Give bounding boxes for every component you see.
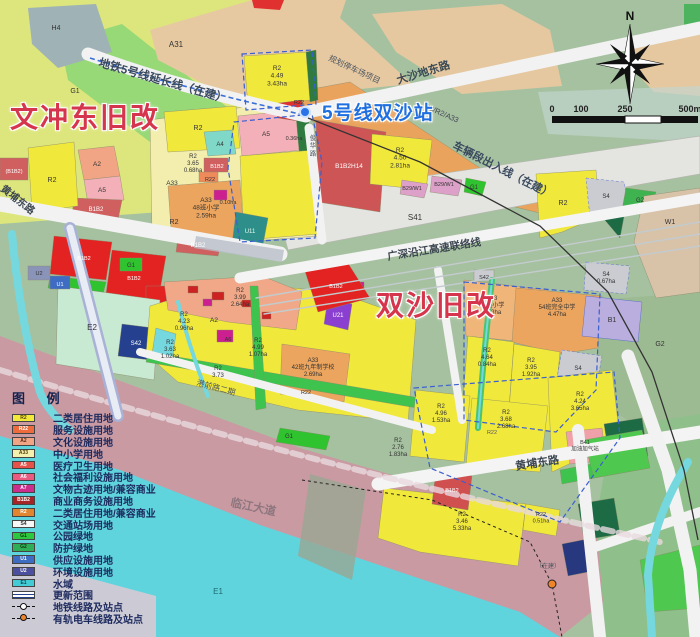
map-label: E2 [87, 323, 97, 332]
map-label: S42 [479, 275, 489, 281]
map-label: B29/W1 [434, 182, 454, 188]
map-label: B1 [608, 317, 617, 324]
map-label: G2 [655, 341, 664, 348]
shuangsha-renewal-label: 双沙旧改 [376, 284, 496, 324]
map-label: A5 [262, 131, 270, 138]
map-label: S42 [131, 341, 142, 347]
map-label: U1 [56, 282, 63, 288]
legend-swatch-range [12, 591, 35, 600]
map-label: B1B2 [210, 164, 223, 170]
planning-map: H4A31G1R24.493.43haR22(B1B2)R2A2A5B1B2R2… [0, 0, 700, 637]
map-label: B1B2 [329, 284, 342, 290]
legend-swatch-B1B2: B1B2 [12, 496, 35, 505]
legend-swatch-R2: R2 [12, 508, 35, 517]
legend-swatch-metro [12, 602, 35, 611]
map-label: R2 [170, 219, 179, 226]
map-label: G1 [127, 263, 136, 269]
legend-item: E1水域 [12, 577, 182, 589]
wenchong-renewal-label: 文冲东旧改 [10, 96, 160, 136]
map-label: 俊华路 [310, 133, 317, 157]
map-label: R22 [205, 177, 215, 183]
legend-item: G1公园绿地 [12, 530, 182, 542]
legend-title: 图 例 [12, 388, 182, 407]
map-label: A31 [169, 40, 184, 49]
legend-swatch-A5: A5 [12, 461, 35, 470]
legend-swatch-E1: E1 [12, 579, 35, 588]
scale-tick: 250 [617, 104, 632, 114]
legend-swatch-R2: R2 [12, 414, 35, 423]
map-label: 0.36ha [286, 136, 304, 142]
scale-tick: 0 [549, 104, 554, 114]
compass-north-label: N [626, 9, 635, 23]
map-label: B1B2 [77, 256, 90, 262]
legend-swatch-U2: U2 [12, 567, 35, 576]
map-label: A5 [98, 187, 106, 194]
map-label: G1 [470, 185, 479, 191]
map-label: R2 [559, 200, 568, 207]
map-label: B1B2 [127, 276, 140, 282]
map-label: A2 [210, 317, 218, 324]
map-label: B1B2 [89, 207, 104, 213]
map-label: G1 [70, 88, 79, 95]
map-label: R2 [194, 125, 203, 132]
scale-tick: 100 [573, 104, 588, 114]
legend-item: 有轨电车线路及站点 [12, 613, 182, 625]
legend-swatch-A33: A33 [12, 449, 35, 458]
map-label: (B1B2) [5, 169, 22, 175]
map-label: A33 [166, 180, 178, 187]
map-label: R22 [487, 430, 497, 436]
map-label: S41 [408, 213, 423, 222]
map-label: A2 [93, 161, 101, 168]
legend-swatch-A7: A7 [12, 484, 35, 493]
map-label: S4 [602, 194, 610, 200]
legend-item: S4交通站场用地 [12, 518, 182, 530]
map-label: B1B2H14 [335, 163, 363, 170]
tram-station-dot [548, 580, 556, 588]
map-label: G2 [636, 198, 645, 204]
legend-swatch-R22: R22 [12, 425, 35, 434]
legend-swatch-tram [12, 614, 35, 623]
map-label: R22 [294, 100, 304, 106]
map-label: B1B2 [445, 488, 458, 494]
map-label: U21 [332, 313, 344, 319]
legend-swatch-A6: A6 [12, 473, 35, 482]
scale-tick: 500m [678, 104, 700, 114]
legend-swatch-A2: A2 [12, 437, 35, 446]
legend-swatch-G1: G1 [12, 532, 35, 541]
map-label: A6 [225, 337, 232, 343]
map-label: U2 [35, 271, 42, 277]
map-label: B1B2 [191, 243, 206, 249]
map-label: A4 [216, 142, 224, 148]
map-label: E1 [213, 587, 223, 596]
metro-station-label: 5号线双沙站 [322, 98, 434, 125]
metro-station-dot [299, 106, 311, 118]
legend-swatch-S4: S4 [12, 520, 35, 529]
map-label: B29/W1 [402, 186, 422, 192]
map-label: （在建） [536, 562, 560, 570]
map-label: R2 [48, 177, 57, 184]
map-label: H4 [52, 25, 61, 32]
map-label: G1 [285, 434, 294, 440]
map-label: 0.10ha [220, 200, 238, 206]
map-label: W1 [665, 219, 676, 226]
legend-swatch-U1: U1 [12, 555, 35, 564]
map-label: U11 [245, 229, 256, 235]
map-legend: 图 例 R2二类居住用地R22服务设施用地A2文化设施用地A33中小学用地A5医… [12, 388, 182, 624]
legend-item: U2环境设施用地 [12, 565, 182, 577]
legend-items: R2二类居住用地R22服务设施用地A2文化设施用地A33中小学用地A5医疗卫生用… [12, 412, 182, 624]
map-label: S4 [574, 366, 582, 372]
map-label: R22 [301, 390, 311, 396]
legend-label: 有轨电车线路及站点 [53, 611, 143, 626]
legend-swatch-G2: G2 [12, 543, 35, 552]
